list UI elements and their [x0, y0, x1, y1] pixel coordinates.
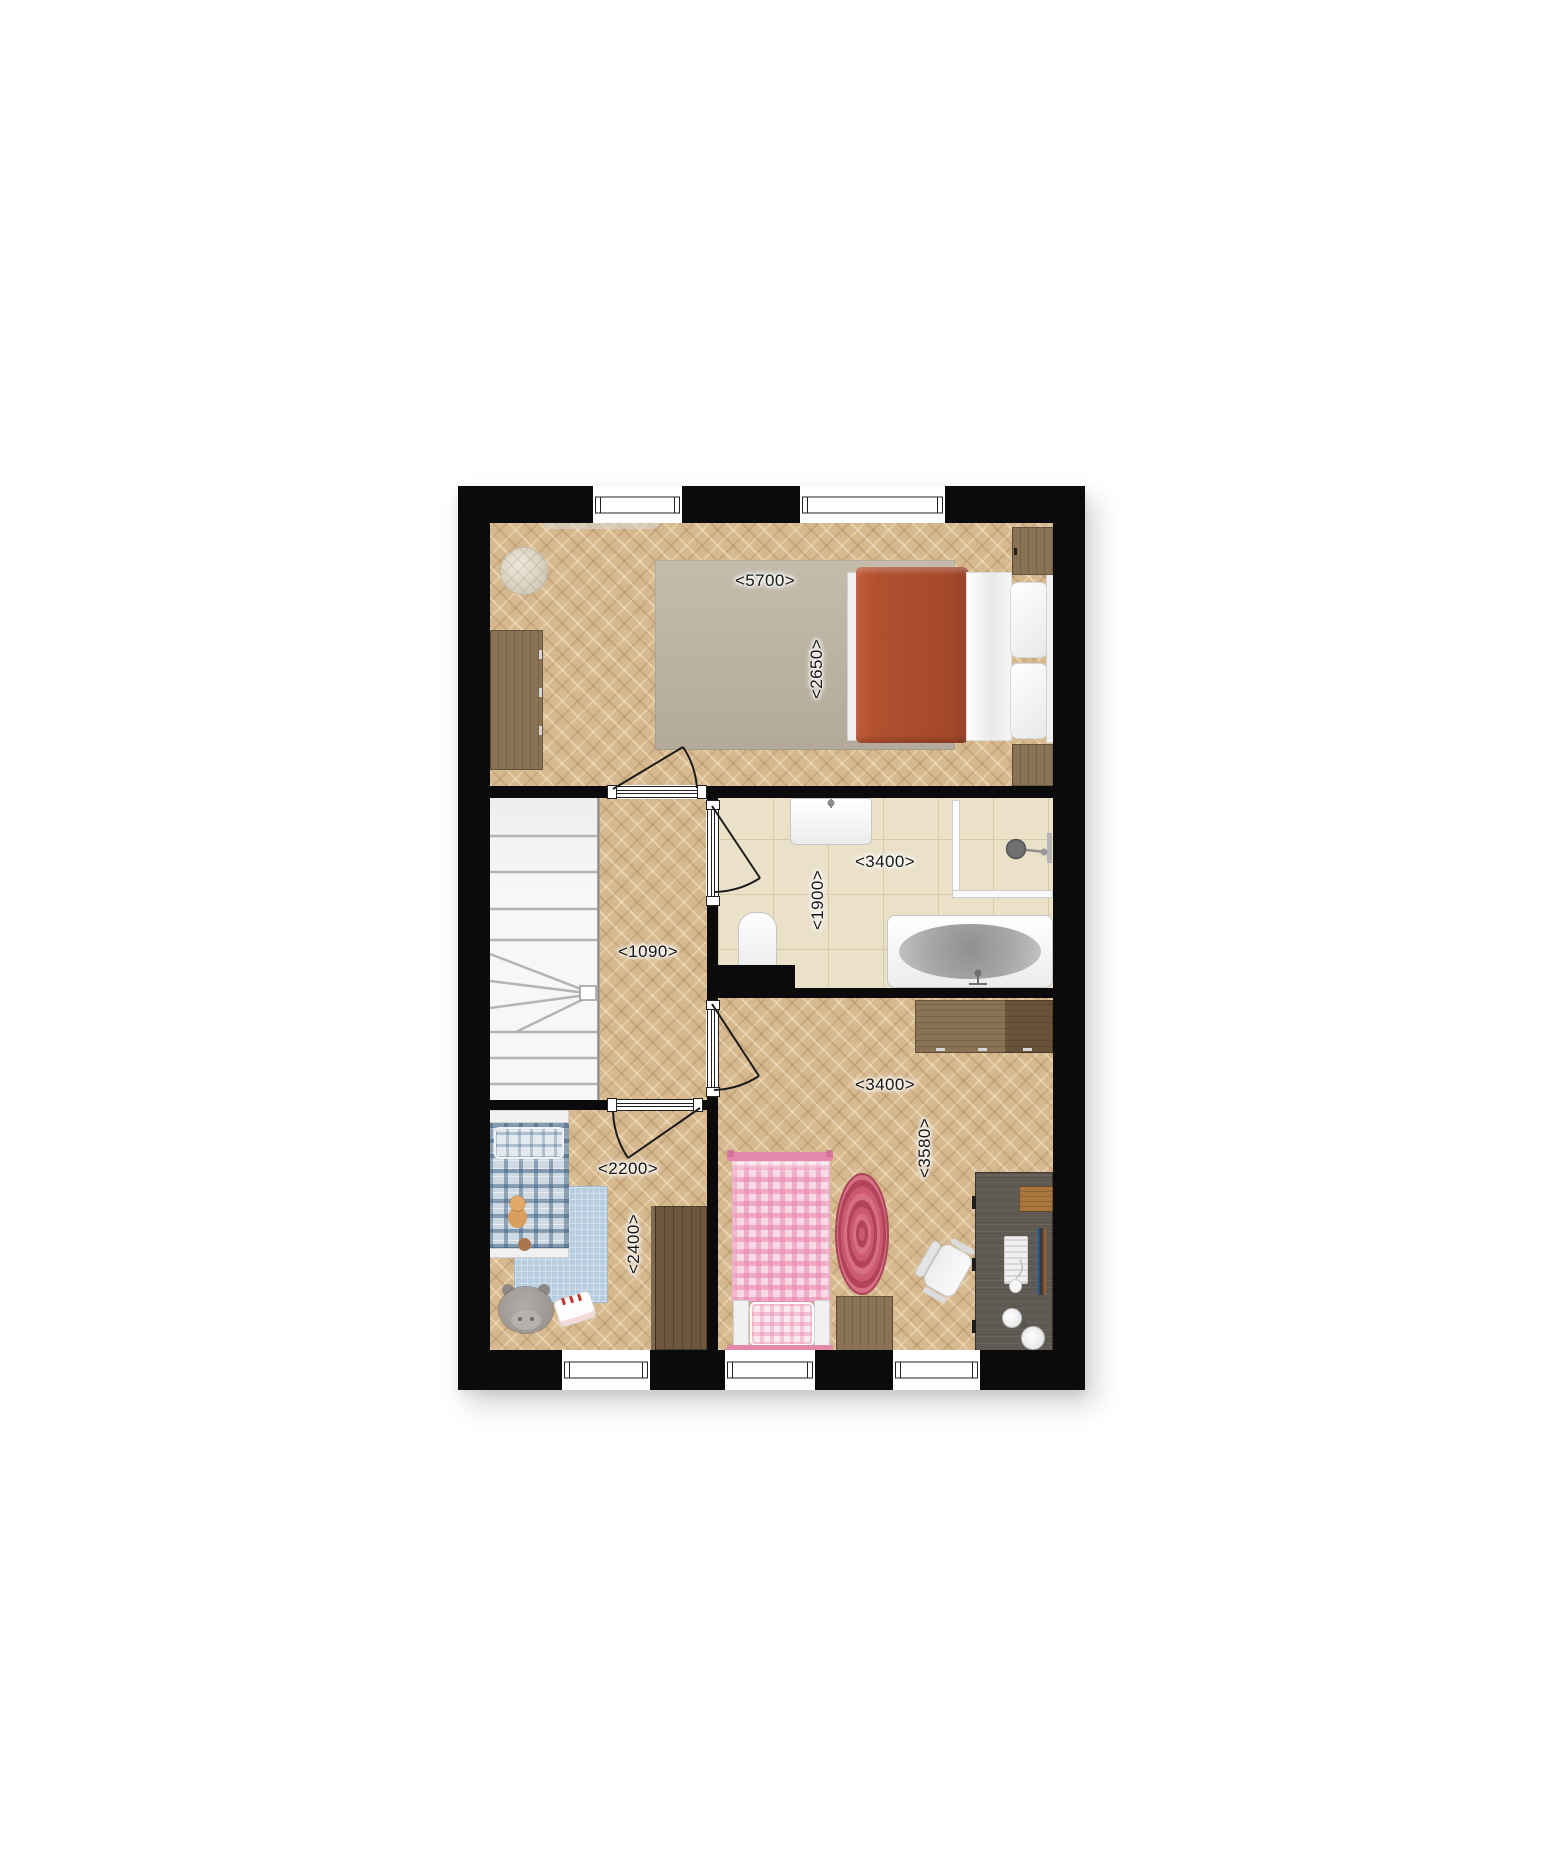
door-kids-room [607, 1099, 703, 1111]
exterior-wall-right [1053, 486, 1085, 1390]
kids-bed-footboard [489, 1248, 569, 1258]
single-bed-blanket [732, 1161, 830, 1302]
single-bed-footboard [727, 1152, 833, 1161]
dimension-label: <1900> [808, 870, 828, 930]
pouf [500, 547, 548, 595]
desk-lamp-icon [1002, 1308, 1022, 1328]
door-bathroom [706, 800, 719, 906]
floor-plan: <5700> <2650> <3400> <1900> <1090> <2200… [458, 486, 1085, 1390]
dimension-label: <2650> [807, 639, 827, 699]
shower-screen [952, 800, 960, 895]
double-bed-blanket [856, 567, 968, 743]
dresser-handle [539, 688, 542, 697]
desk-clamp [972, 1196, 976, 1209]
bedpost [727, 1150, 734, 1157]
sideboard-handle [936, 1048, 945, 1051]
desk-clamp [972, 1320, 976, 1333]
window-icon [725, 1350, 815, 1390]
dimension-label: <2200> [598, 1159, 658, 1179]
desk-lamp-joint [1021, 1322, 1027, 1328]
desk-lamp-shade [1021, 1326, 1045, 1350]
dimension-label: <1090> [618, 942, 678, 962]
bathtub-basin [899, 924, 1041, 979]
bed-pillow [1010, 582, 1048, 658]
wooden-box [1019, 1186, 1053, 1212]
toilet-icon [738, 912, 777, 967]
dimension-label: <3580> [915, 1118, 935, 1178]
wardrobe [651, 1206, 707, 1350]
bed-pillow [1010, 663, 1048, 739]
exterior-wall-top [458, 486, 1085, 523]
exterior-wall-left [458, 486, 490, 1390]
dimension-label: <3400> [855, 1075, 915, 1095]
single-bed-rail [814, 1300, 830, 1350]
kids-bed-pillow [494, 1127, 564, 1159]
stairwell [490, 798, 600, 1100]
mouse-icon [1009, 1279, 1022, 1293]
double-bed-sheet [966, 572, 1012, 741]
single-bed-pillow [750, 1302, 814, 1346]
nightstand [1012, 744, 1054, 786]
kids-bed-headboard [489, 1110, 569, 1123]
floorplan-page: <5700> <2650> <3400> <1900> <1090> <2200… [0, 0, 1544, 1874]
dresser-handle [539, 726, 542, 735]
teddy-bear-icon [510, 1196, 525, 1211]
sideboard-handle [978, 1048, 987, 1051]
round-rug [835, 1173, 889, 1295]
washbasin-icon [790, 798, 872, 845]
window-icon [562, 1350, 650, 1390]
small-plush [518, 1238, 531, 1251]
dresser-handle [539, 650, 542, 659]
dimension-label: <3400> [855, 852, 915, 872]
door-bedroom [706, 1000, 719, 1097]
wall-master-hall [490, 786, 1053, 798]
nightstand-handle [1014, 548, 1017, 555]
keyboard-icon [1004, 1236, 1028, 1284]
door-master-bedroom [607, 785, 707, 799]
dimension-label: <5700> [735, 571, 795, 591]
wall-bathroom-bedroom [707, 988, 1053, 998]
sideboard-dark-section [1005, 1000, 1053, 1053]
bedpost [826, 1150, 833, 1157]
sideboard-handle [1023, 1048, 1032, 1051]
monitor-icon [1037, 1228, 1046, 1295]
hippo-snout [511, 1310, 541, 1330]
hippo-nostril [518, 1317, 522, 1321]
single-bed-rail [733, 1300, 749, 1350]
hippo-nostril [530, 1317, 534, 1321]
shower-screen [952, 890, 1053, 898]
dresser [490, 630, 543, 770]
window-icon [893, 1350, 980, 1390]
toilet-partition-wall [717, 965, 795, 988]
nightstand [836, 1296, 893, 1351]
dimension-label: <2400> [624, 1214, 644, 1274]
window-icon [593, 486, 682, 523]
nightstand [1012, 527, 1054, 575]
window-icon [800, 486, 945, 523]
